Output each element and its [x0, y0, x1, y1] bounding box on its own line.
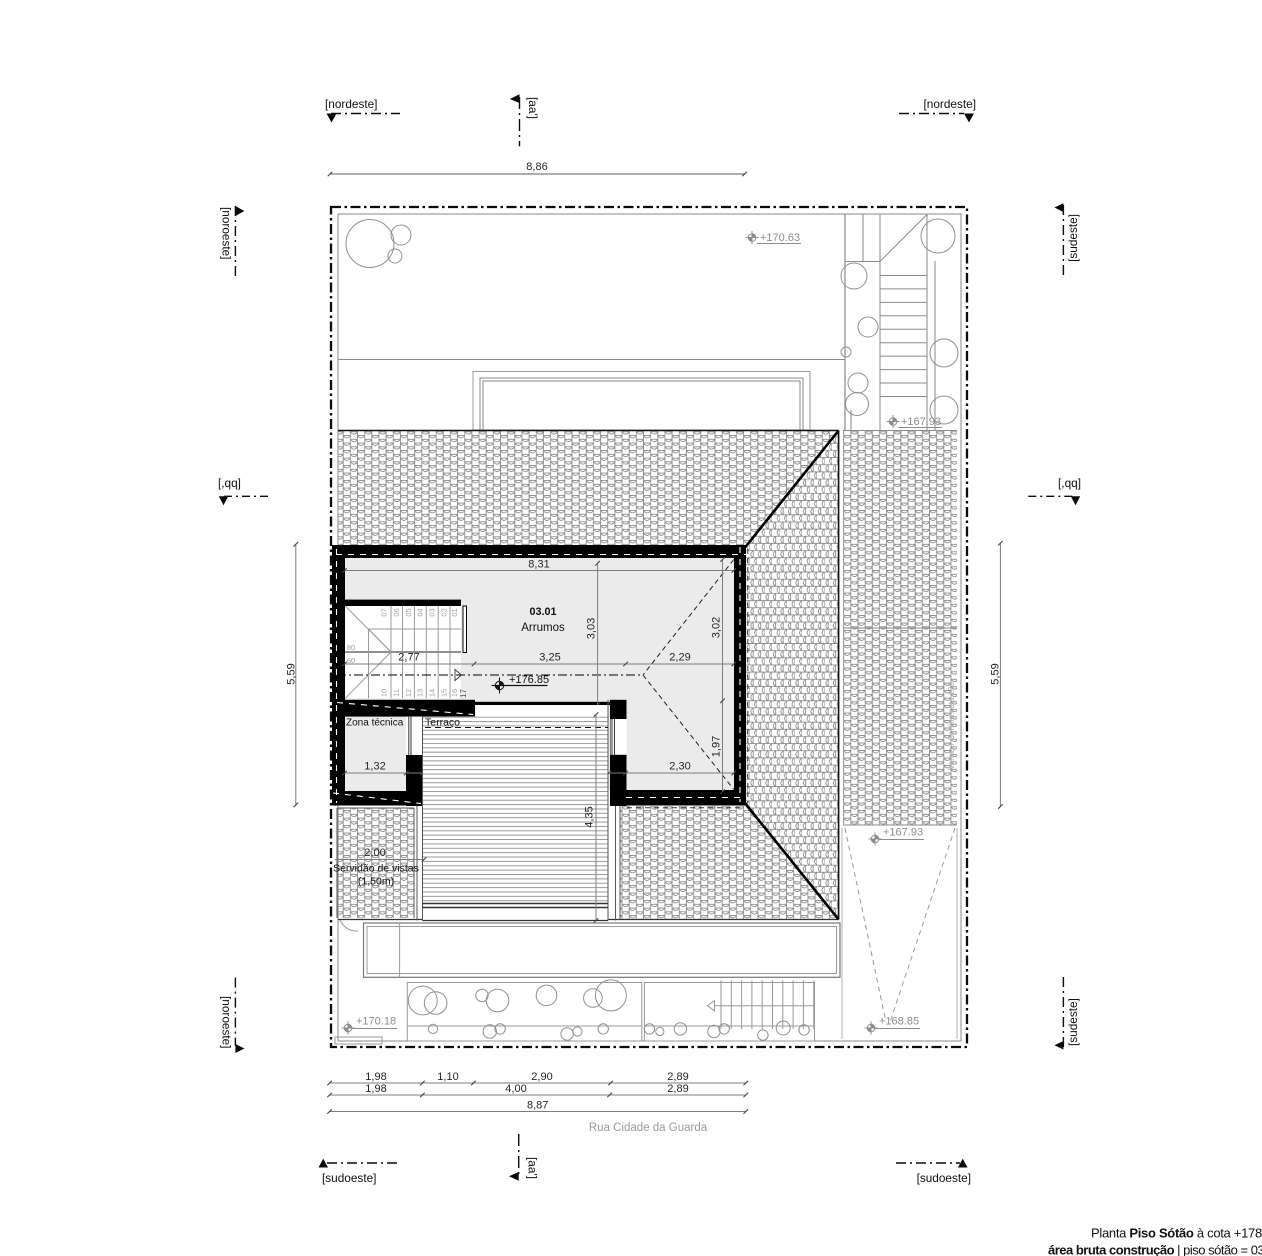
svg-text:Terraço: Terraço	[425, 717, 460, 729]
svg-text:2,90: 2,90	[531, 1071, 552, 1083]
svg-text:1,32: 1,32	[364, 761, 385, 773]
svg-text:11: 11	[392, 689, 401, 697]
svg-text:2,77: 2,77	[398, 652, 419, 664]
svg-text:1,98: 1,98	[365, 1071, 386, 1083]
svg-text:+170.18: +170.18	[356, 1016, 396, 1028]
svg-text:03.01: 03.01	[529, 606, 556, 618]
svg-text:[noroeste]: [noroeste]	[220, 207, 234, 259]
svg-text:8,86: 8,86	[526, 161, 547, 173]
svg-text:17: 17	[459, 689, 468, 698]
svg-text:13: 13	[416, 689, 425, 697]
svg-text:5,59: 5,59	[990, 663, 1002, 684]
svg-text:[nordeste]: [nordeste]	[924, 97, 976, 111]
svg-text:[,qq]: [,qq]	[218, 476, 241, 490]
svg-text:5,59: 5,59	[286, 663, 298, 684]
svg-text:+170.63: +170.63	[760, 232, 800, 244]
svg-text:+176.85: +176.85	[509, 674, 549, 686]
svg-text:(1,50m): (1,50m)	[358, 876, 394, 888]
svg-text:[sudoeste]: [sudoeste]	[322, 1171, 376, 1185]
svg-text:2,29: 2,29	[669, 652, 690, 664]
svg-text:03: 03	[428, 608, 437, 616]
svg-text:1,97: 1,97	[711, 736, 723, 757]
svg-text:05: 05	[404, 608, 413, 616]
svg-text:[sudeste]: [sudeste]	[1066, 998, 1080, 1046]
svg-text:14: 14	[428, 689, 437, 697]
svg-text:[,qq]: [,qq]	[1058, 476, 1081, 490]
svg-text:04: 04	[416, 608, 425, 616]
svg-text:3,03: 3,03	[586, 618, 598, 639]
svg-text:2,89: 2,89	[667, 1071, 688, 1083]
svg-text:Planta Piso Sótão à cota +178.: Planta Piso Sótão à cota +178.50	[1091, 1226, 1262, 1241]
svg-text:+167.93: +167.93	[901, 416, 941, 428]
svg-text:1,98: 1,98	[365, 1083, 386, 1095]
svg-text:Varela / Cortina cota 100: Varela / Cortina cota 100	[947, 682, 956, 770]
svg-text:2,00: 2,00	[364, 847, 385, 859]
svg-text:02: 02	[439, 608, 448, 616]
svg-text:área bruta construção | piso s: área bruta construção | piso sótão = 031…	[1048, 1243, 1262, 1256]
svg-text:4,35: 4,35	[584, 806, 596, 827]
svg-text:[aa']: [aa']	[526, 1157, 540, 1179]
svg-text:8,31: 8,31	[528, 559, 549, 571]
svg-text:4,00: 4,00	[505, 1083, 526, 1095]
svg-text:[sudeste]: [sudeste]	[1066, 214, 1080, 262]
svg-text:06: 06	[392, 608, 401, 616]
svg-text:[noroeste]: [noroeste]	[220, 996, 234, 1048]
svg-text:3,25: 3,25	[539, 652, 560, 664]
svg-text:[sudoeste]: [sudoeste]	[917, 1171, 971, 1185]
svg-text:Arrumos: Arrumos	[521, 622, 565, 634]
svg-text:15: 15	[439, 689, 448, 697]
svg-text:Zona técnica: Zona técnica	[346, 717, 404, 728]
svg-text:Rua Cidade da Guarda: Rua Cidade da Guarda	[589, 1122, 708, 1134]
svg-text:+167.93: +167.93	[883, 827, 923, 839]
svg-text:07: 07	[380, 608, 389, 616]
svg-text:10: 10	[380, 689, 389, 697]
svg-text:2,89: 2,89	[667, 1083, 688, 1095]
svg-text:12: 12	[404, 689, 413, 697]
svg-text:08: 08	[347, 643, 355, 652]
svg-text:[nordeste]: [nordeste]	[325, 97, 377, 111]
svg-text:01: 01	[450, 608, 459, 616]
svg-text:16: 16	[450, 689, 459, 697]
svg-text:[aa']: [aa']	[526, 97, 540, 119]
svg-text:Servidão de vistas: Servidão de vistas	[333, 863, 419, 875]
svg-text:1,10: 1,10	[437, 1071, 458, 1083]
svg-text:8,87: 8,87	[527, 1100, 548, 1112]
svg-text:3,02: 3,02	[711, 617, 723, 638]
svg-text:2,30: 2,30	[669, 761, 690, 773]
